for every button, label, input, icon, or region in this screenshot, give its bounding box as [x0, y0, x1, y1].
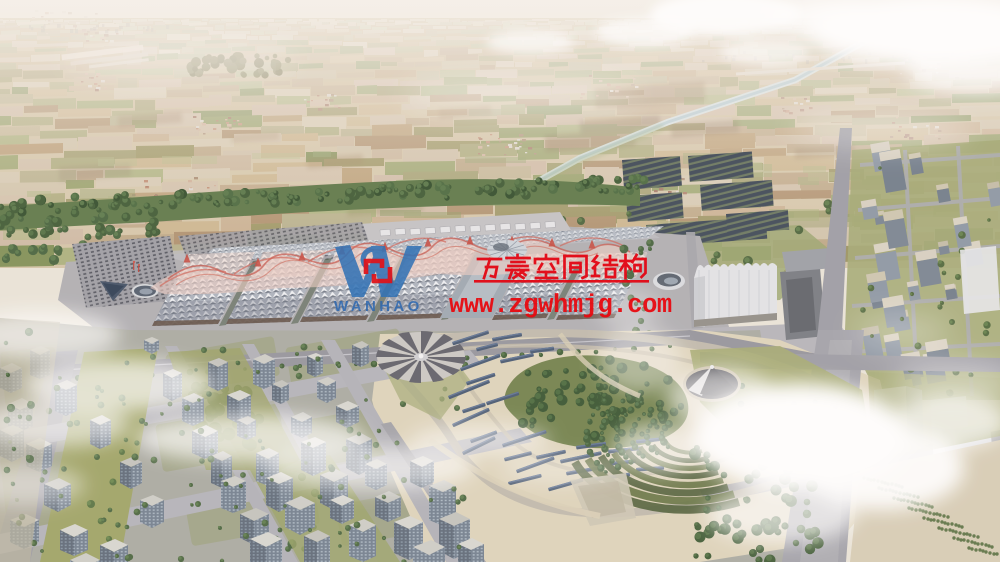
svg-text:www.zgwhmjg.com: www.zgwhmjg.com [449, 291, 672, 320]
svg-text:WANHAO: WANHAO [334, 298, 423, 315]
